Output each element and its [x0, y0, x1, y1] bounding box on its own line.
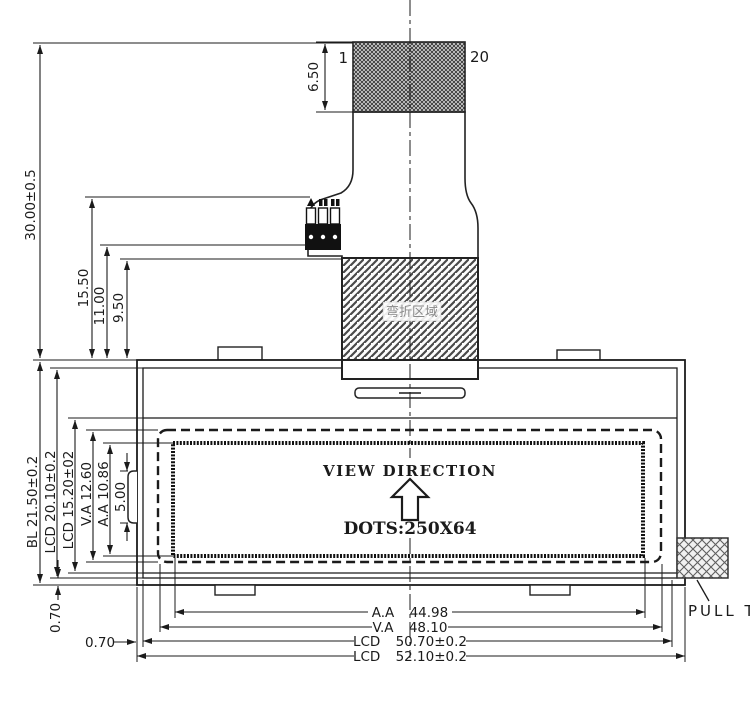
pin-mark-icon: [331, 199, 335, 206]
drawing-canvas: 1 20 6.50 30.00±0.5 15.50 11.00 9.50 BL …: [0, 0, 750, 725]
lcd-module-mechanical-drawing: 1 20 6.50 30.00±0.5 15.50 11.00 9.50 BL …: [0, 0, 750, 725]
view-direction-label: VIEW DIRECTION: [322, 462, 497, 480]
dim-fpc-950: 9.50: [111, 293, 127, 323]
bottom-tab-right: [530, 585, 570, 595]
pin-1-label: 1: [338, 49, 348, 67]
pin-hole: [309, 235, 313, 239]
bottom-tab-left: [215, 585, 255, 595]
fpc-connector-hatched: [353, 42, 465, 112]
top-tab-left: [218, 347, 262, 360]
pull-tab-hatched: [677, 538, 728, 578]
pull-tab-label: PULL TAB: [688, 602, 750, 620]
pin-body: [307, 208, 316, 224]
dots-resolution-label: DOTS:250X64: [343, 519, 476, 539]
dim-lcd-inner-width: LCD 50.70±0.2: [353, 634, 467, 650]
pin-mark-icon: [319, 199, 323, 206]
pull-tab-leader: [697, 580, 709, 601]
dim-connector-height: 6.50: [306, 62, 322, 92]
bend-area-label: 弯折区域: [386, 304, 438, 320]
dim-va-height: V.A 12.60: [79, 462, 95, 526]
pin-body: [319, 208, 328, 224]
pin-mark-triangle-icon: [307, 198, 315, 206]
dim-overall-height: 30.00±0.5: [23, 169, 39, 240]
pin-body: [331, 208, 340, 224]
pin-20-label: 20: [470, 48, 489, 66]
dim-aa-height: A.A 10.86: [96, 461, 112, 526]
dim-lcd-outer-width: LCD 52.10±0.2: [353, 649, 467, 665]
dim-fpc-1550: 15.50: [76, 269, 92, 308]
dim-aa-width: A.A 44.98: [372, 605, 448, 621]
dim-fpc-1100: 11.00: [92, 287, 108, 326]
left-side-tab: [128, 471, 137, 523]
pin-mark-icon: [324, 199, 328, 206]
pin-mark-icon: [336, 199, 340, 206]
pin-hole: [333, 235, 337, 239]
dim-lcd-glass-height: LCD 15.20±02: [61, 451, 77, 550]
top-tab-right: [557, 350, 600, 360]
dim-edge-vertical: 0.70: [48, 603, 64, 633]
dim-edge-horizontal: 0.70: [85, 635, 115, 651]
dim-side-tab: 5.00: [113, 482, 129, 512]
dim-lcd-height: LCD 20.10±0.2: [43, 450, 59, 553]
pin-hole: [321, 235, 325, 239]
dim-bl-height: BL 21.50±0.2: [25, 456, 41, 549]
